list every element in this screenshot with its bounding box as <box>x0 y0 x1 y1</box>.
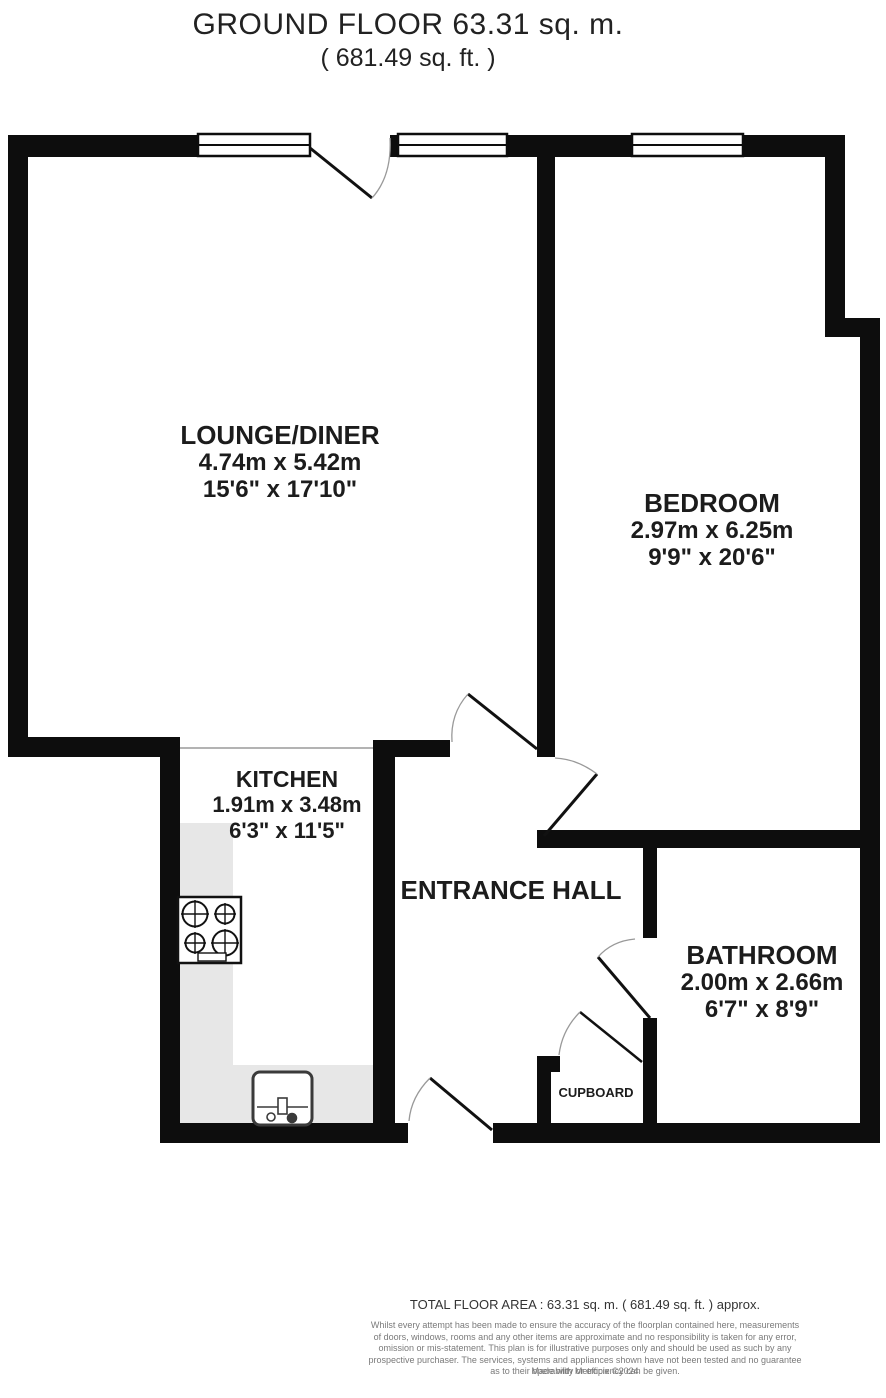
room-label-entrance-hall: ENTRANCE HALL <box>361 876 661 904</box>
floorplan-drawing <box>0 0 886 1398</box>
room-dims-metric: 1.91m x 3.48m <box>162 792 412 818</box>
room-dims-imperial: 15'6" x 17'10" <box>130 476 430 503</box>
total-floor-area: TOTAL FLOOR AREA : 63.31 sq. m. ( 681.49… <box>235 1297 886 1312</box>
room-dims-metric: 2.00m x 2.66m <box>637 969 886 996</box>
hob-icon <box>178 897 241 963</box>
room-name: KITCHEN <box>162 766 412 792</box>
room-name: ENTRANCE HALL <box>361 876 661 904</box>
disclaimer-line: Whilst every attempt has been made to en… <box>235 1320 886 1332</box>
room-label-lounge: LOUNGE/DINER 4.74m x 5.42m 15'6" x 17'10… <box>130 421 430 503</box>
metropix-credit: Made with Metropix ©2024 <box>235 1366 886 1376</box>
room-dims-imperial: 9'9" x 20'6" <box>562 544 862 571</box>
room-dims-metric: 4.74m x 5.42m <box>130 449 430 476</box>
cupboard-door-swing-icon <box>559 1012 642 1062</box>
sink-icon <box>253 1072 312 1125</box>
room-label-bedroom: BEDROOM 2.97m x 6.25m 9'9" x 20'6" <box>562 489 862 571</box>
front-door-swing-icon <box>310 138 390 198</box>
bedroom-door-swing-icon <box>544 758 597 836</box>
room-label-cupboard: CUPBOARD <box>536 1085 656 1100</box>
room-name: CUPBOARD <box>536 1085 656 1100</box>
entrance-door-swing-icon <box>409 1078 492 1130</box>
room-dims-imperial: 6'3" x 11'5" <box>162 818 412 844</box>
room-dims-imperial: 6'7" x 8'9" <box>637 996 886 1023</box>
window-icon <box>398 134 507 156</box>
room-name: BEDROOM <box>562 489 862 517</box>
room-label-bathroom: BATHROOM 2.00m x 2.66m 6'7" x 8'9" <box>637 941 886 1023</box>
disclaimer-line: of doors, windows, rooms and any other i… <box>235 1332 886 1344</box>
lounge-door-swing-icon <box>452 694 537 749</box>
windows <box>198 134 743 156</box>
room-name: BATHROOM <box>637 941 886 969</box>
disclaimer-line: prospective purchaser. The services, sys… <box>235 1355 886 1367</box>
room-label-kitchen: KITCHEN 1.91m x 3.48m 6'3" x 11'5" <box>162 766 412 844</box>
disclaimer-line: omission or mis-statement. This plan is … <box>235 1343 886 1355</box>
window-icon <box>632 134 743 156</box>
room-dims-metric: 2.97m x 6.25m <box>562 517 862 544</box>
doors <box>310 138 650 1130</box>
window-icon <box>198 134 310 156</box>
floorplan-page: GROUND FLOOR 63.31 sq. m. ( 681.49 sq. f… <box>0 0 886 1398</box>
room-name: LOUNGE/DINER <box>130 421 430 449</box>
